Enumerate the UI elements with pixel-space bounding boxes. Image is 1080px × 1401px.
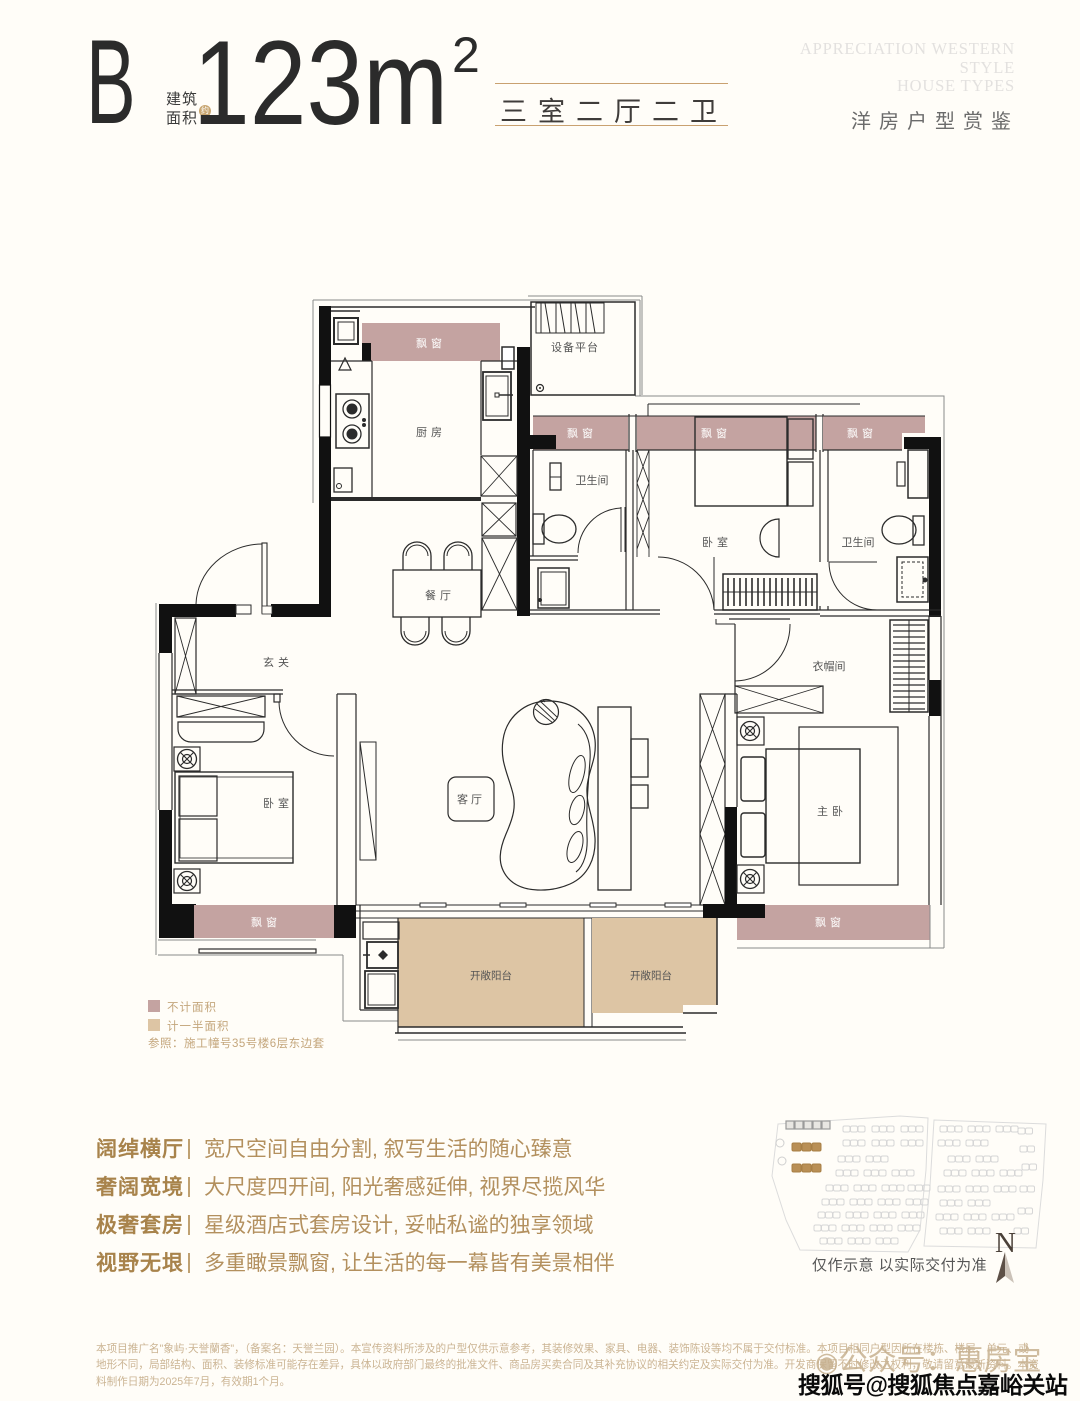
svg-text:客厅: 客厅 (457, 792, 485, 806)
svg-text:飘窗: 飘窗 (815, 915, 845, 929)
svg-text:飘窗: 飘窗 (847, 426, 877, 440)
svg-text:设备平台: 设备平台 (551, 340, 599, 354)
svg-text:开敞阳台: 开敞阳台 (630, 969, 672, 982)
svg-text:飘窗: 飘窗 (251, 915, 281, 929)
svg-text:厨房: 厨房 (416, 426, 446, 439)
svg-text:飘窗: 飘窗 (416, 336, 446, 350)
svg-text:飘窗: 飘窗 (567, 426, 597, 440)
svg-text:衣帽间: 衣帽间 (813, 659, 846, 673)
svg-text:卧室: 卧室 (263, 796, 293, 810)
svg-text:开敞阳台: 开敞阳台 (470, 969, 512, 982)
svg-text:主卧: 主卧 (817, 805, 847, 818)
svg-text:卫生间: 卫生间 (842, 535, 875, 549)
svg-text:餐厅: 餐厅 (425, 588, 455, 602)
svg-text:卫生间: 卫生间 (576, 473, 609, 487)
svg-text:玄关: 玄关 (263, 655, 293, 669)
svg-text:卧室: 卧室 (702, 535, 732, 549)
svg-text:飘窗: 飘窗 (701, 426, 731, 440)
